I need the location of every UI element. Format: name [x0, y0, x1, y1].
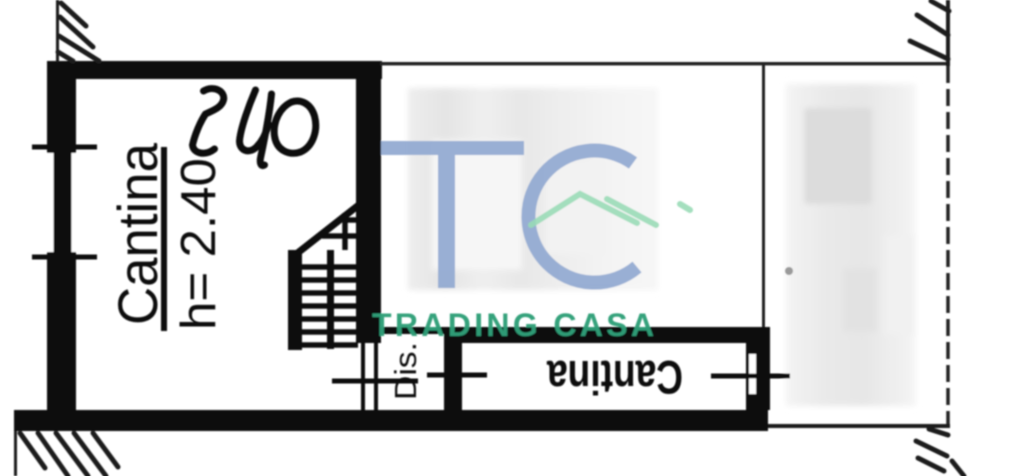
svg-text:TRADING CASA: TRADING CASA	[372, 307, 654, 343]
svg-text:h= 2.40: h= 2.40	[172, 158, 226, 330]
svg-text:Dis.: Dis.	[388, 342, 423, 400]
svg-text:Cantina: Cantina	[546, 351, 683, 404]
svg-text:Cantina: Cantina	[106, 142, 169, 325]
